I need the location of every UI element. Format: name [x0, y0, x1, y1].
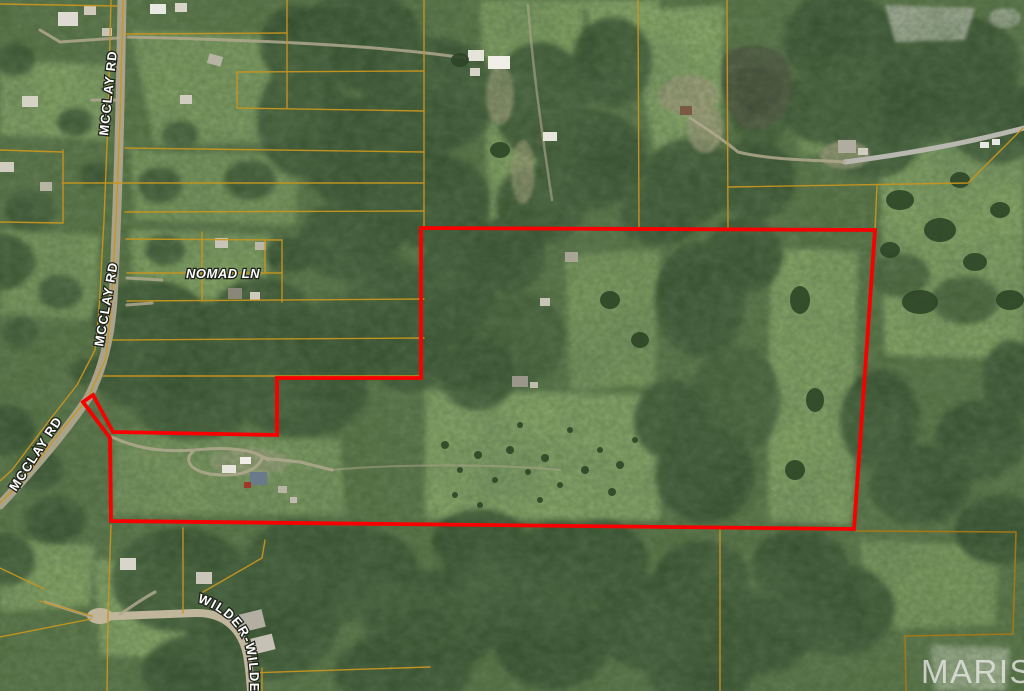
noise-fine [0, 0, 1024, 691]
aerial-map: MCCLAY RD MCCLAY RD MCCLAY RD NOMAD LN W… [0, 0, 1024, 691]
map-canvas: MCCLAY RD MCCLAY RD MCCLAY RD NOMAD LN W… [0, 0, 1024, 691]
nomad-ln-label: NOMAD LN [186, 266, 260, 281]
maris-watermark: MARIS [921, 653, 1024, 690]
